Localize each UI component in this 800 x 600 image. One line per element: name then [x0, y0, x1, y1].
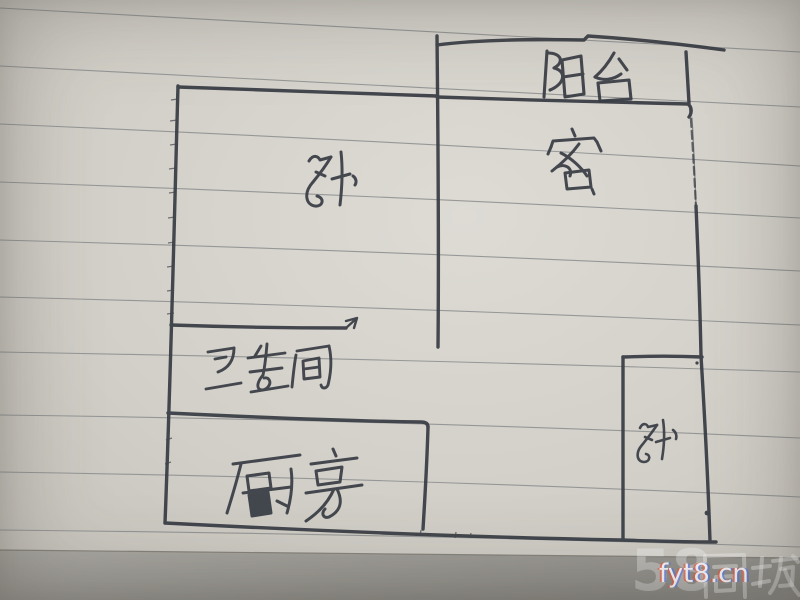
ink-corner-dot — [695, 361, 698, 364]
wall-divider-bedroom-living — [437, 36, 438, 347]
floorplan-sketch-svg: 阳台 客 卧 — [0, 0, 800, 600]
watermark-site-url: fyt8.cn — [659, 561, 749, 587]
notebook-floorplan-photo: 阳台 客 卧 — [0, 0, 800, 600]
ink-junction-dot — [705, 511, 710, 516]
wall-smallroom-top — [623, 356, 702, 357]
